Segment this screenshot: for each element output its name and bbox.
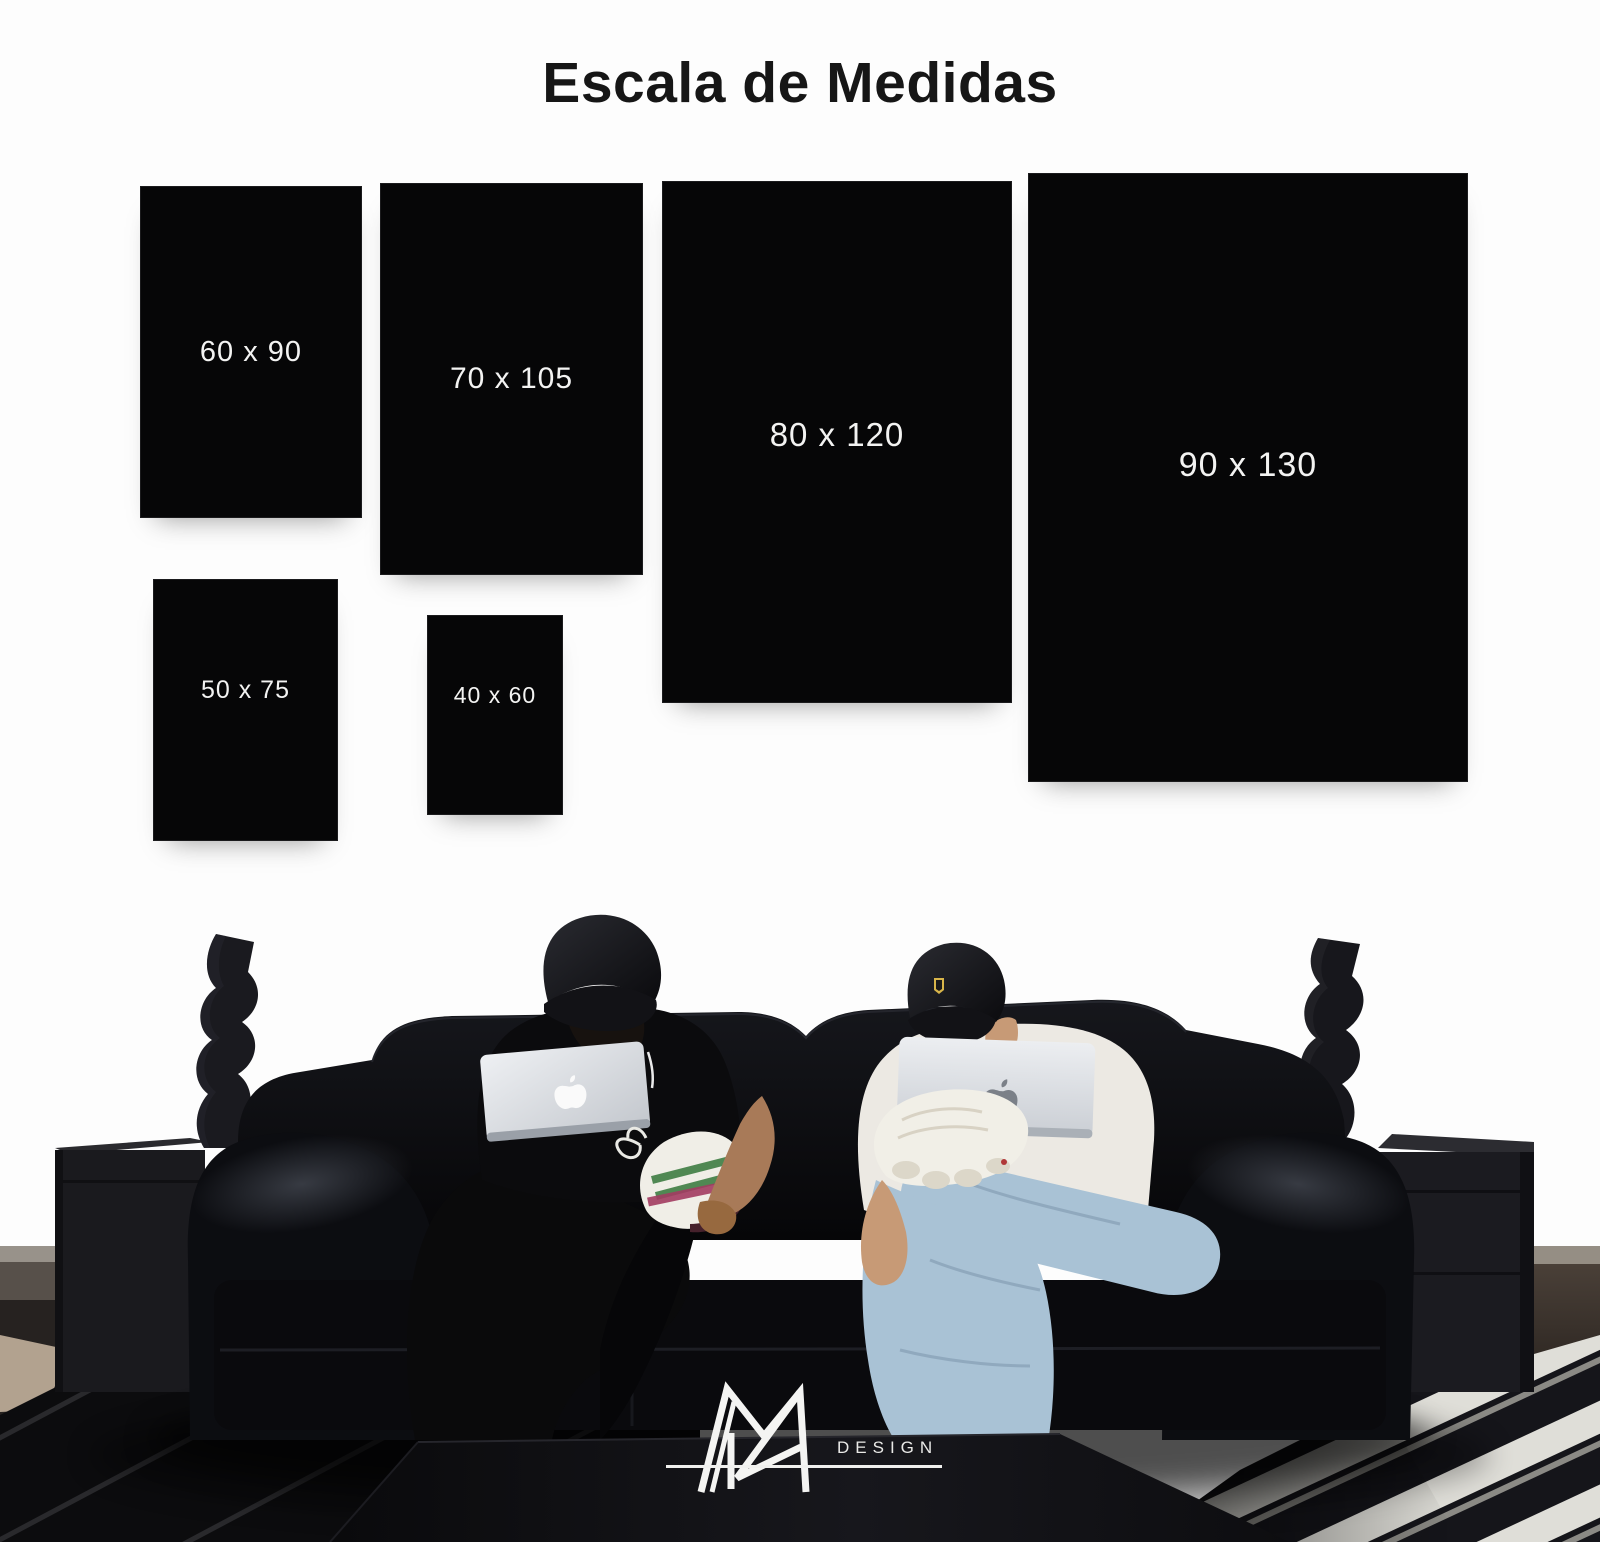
macbook-left	[480, 1041, 651, 1142]
size-panel-50x75: 50 x 75	[153, 579, 338, 841]
size-label-90x130: 90 x 130	[1179, 446, 1317, 485]
size-label-60x90: 60 x 90	[200, 336, 302, 369]
size-label-70x105: 70 x 105	[450, 362, 573, 396]
size-label-50x75: 50 x 75	[201, 676, 290, 705]
size-panel-90x130: 90 x 130	[1028, 173, 1468, 782]
size-label-80x120: 80 x 120	[770, 416, 905, 454]
side-table-left	[55, 1138, 210, 1392]
size-label-40x60: 40 x 60	[454, 682, 536, 709]
size-panel-40x60: 40 x 60	[427, 615, 563, 815]
sneaker-right-logo-dot	[1001, 1159, 1007, 1165]
page-title: Escala de Medidas	[0, 50, 1600, 116]
couch-seam-horizontal	[220, 1348, 1380, 1350]
leather-couch	[184, 1000, 1417, 1440]
logo-rule-line	[666, 1465, 942, 1468]
size-panel-70x105: 70 x 105	[380, 183, 643, 575]
brand-wordmark: DESIGN	[837, 1438, 938, 1457]
baseboard-right	[1528, 1246, 1600, 1264]
living-room-scene: DESIGN	[0, 880, 1600, 1542]
size-panel-60x90: 60 x 90	[140, 186, 362, 518]
size-guide-poster: Escala de Medidas 60 x 90 70 x 105 80 x …	[0, 0, 1600, 1542]
size-panel-80x120: 80 x 120	[662, 181, 1012, 703]
